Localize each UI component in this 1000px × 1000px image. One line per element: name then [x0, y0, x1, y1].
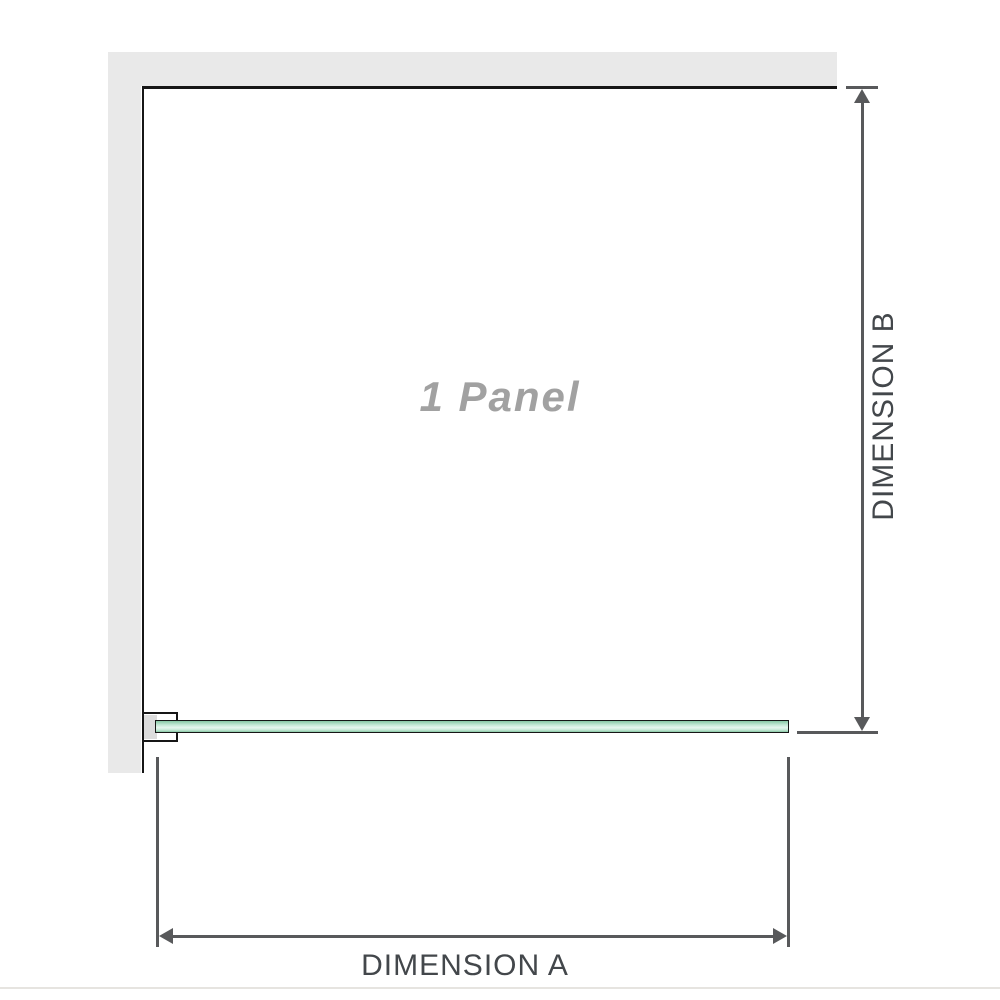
wall-left-bar — [108, 52, 141, 773]
diagram-canvas: DIMENSION B DIMENSION A 1 Panel — [0, 0, 1000, 1000]
arrow-down-icon — [854, 717, 870, 731]
arrow-right-icon — [773, 928, 787, 944]
wall-top-bar — [108, 52, 837, 86]
dimension-a-extension-right — [787, 757, 790, 947]
arrow-up-icon — [854, 89, 870, 103]
enclosure-top-line — [142, 86, 838, 89]
enclosure-left-line — [142, 86, 145, 773]
glass-panel — [155, 720, 789, 733]
dimension-b-label: DIMENSION B — [864, 216, 904, 616]
dimension-a-label: DIMENSION A — [265, 949, 665, 983]
dimension-a-extension-left — [156, 757, 159, 947]
panel-count-label: 1 Panel — [300, 376, 700, 418]
dimension-a-line — [171, 935, 775, 938]
arrow-left-icon — [159, 928, 173, 944]
page-divider — [0, 987, 1000, 989]
